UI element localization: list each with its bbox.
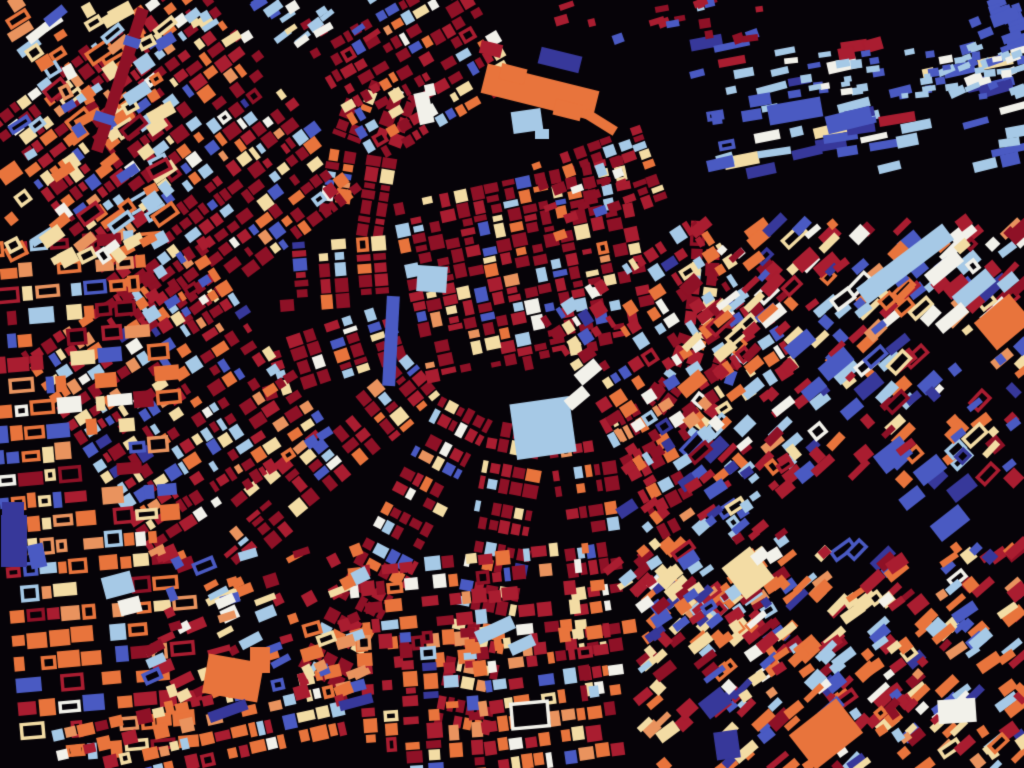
building-age-map-viewport xyxy=(0,0,1024,768)
amsterdam-building-footprints-map xyxy=(0,0,1024,768)
